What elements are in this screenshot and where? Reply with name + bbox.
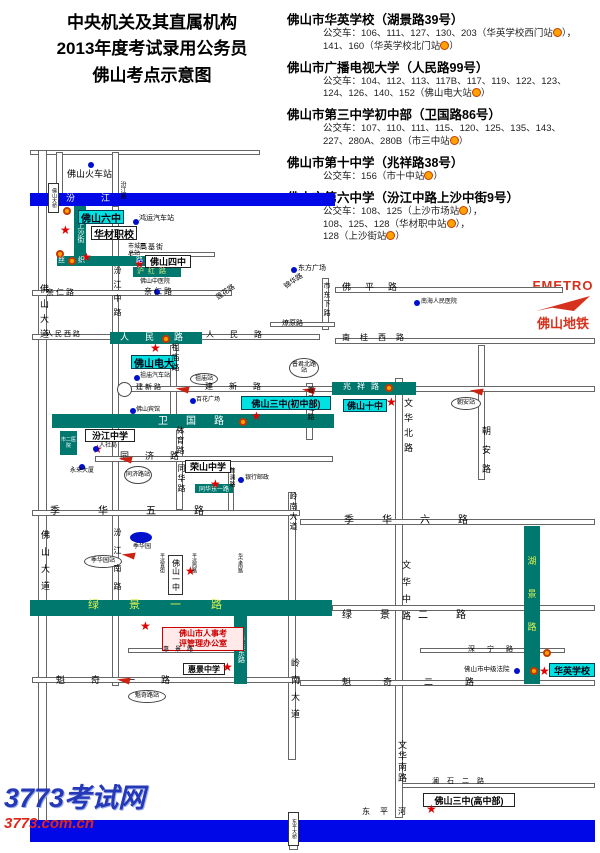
school-huaying: 华英学校 [549, 663, 595, 677]
wenhua-south-road-label: 文华南路 [397, 740, 406, 784]
roundabout [117, 382, 132, 397]
post-office-label: 银行邮政 [245, 475, 269, 482]
qinren-road-label-west: 亲仁路 [46, 289, 76, 298]
lingnan-avenue-label-bottom: 岭南大道 [290, 658, 299, 726]
huijing-road-label: 惠景路 [163, 647, 199, 654]
hujing-road-band: 湖景路 [524, 526, 540, 684]
star-foshan-dianda: ★ [150, 342, 161, 354]
gaoji-street-label: 高基街 [140, 244, 164, 252]
school-foshan-1: 佛山一中 [168, 555, 183, 595]
zhaoxiang-band-label: 兆祥路 [343, 383, 385, 392]
school-foshan-10: 佛山十中 [343, 399, 387, 412]
road-top-edge [30, 150, 260, 155]
shenning-road-label: 深宁路 [468, 646, 525, 654]
jihua-park-label: 季华园 [133, 544, 151, 551]
kuiqi-2-road-label: 魁奇二路 [342, 678, 506, 688]
nanhai-hospital-dot [414, 300, 420, 306]
zhongyi-hospital-label: 佛山中医院 [140, 279, 170, 286]
lanshi-2-road-label: 澜石二路 [432, 778, 492, 786]
jihua-5-road-label: 季华五路 [50, 506, 242, 517]
busstop-huaying [530, 667, 538, 675]
qinren-road-label-east: 亲仁路 [144, 288, 174, 297]
yonglai-tower-label: 永来大厦 [70, 468, 94, 475]
liaoyuan-road-label: 燎原路 [282, 320, 303, 328]
small-teal-block: 市二医院 [60, 431, 77, 455]
star-rongshan: ★ [210, 478, 221, 490]
railway-station-label: 佛山火车站 [67, 170, 112, 180]
busstop-zhaoxiang [385, 384, 393, 392]
pulan-road-label: 普澜路 [228, 467, 234, 488]
dongfang-plaza-label: 东方广场 [298, 265, 326, 273]
foping-road-label: 佛平路 [342, 283, 411, 293]
lanshi-2-road [402, 783, 595, 788]
watermark-main: 3773考试网 [4, 776, 219, 815]
metro-kuiqi-station: 魁奇路站 [128, 690, 166, 703]
dongping-bridge-label: 东平大桥 [288, 812, 299, 846]
map-layer: 同华东一路上沙街华远东路湖景路佛山大桥东平大桥汾江佛山火车站汾江路佛山六中★华材… [0, 0, 600, 853]
busstop-sizhi [68, 257, 76, 265]
zumiao-road-label: 祖庙路 [171, 343, 179, 373]
fenjiang-road-label: 汾江路 [119, 181, 125, 199]
dongping-river-label: 东平河 [362, 808, 416, 817]
jihua-park-shape [130, 532, 152, 543]
metro-chaoan-station: 朝安站 [451, 397, 481, 410]
school-foshan-3-senior: 佛山三中(高中部) [423, 793, 515, 807]
intermediate-court-dot [514, 668, 520, 674]
sizhi-char-3: 路 [136, 257, 143, 265]
lvjing-1-band-label: 绿景一路 [88, 599, 252, 611]
foshan-hotel-label: 佛山宾馆 [136, 407, 160, 414]
weiguo-band-label: 卫国路 [158, 416, 242, 427]
busstop-huacai [63, 207, 71, 215]
school-foshan-4: 佛山四中 [145, 255, 191, 268]
pingyuan-street-label: 平远直街 [159, 553, 164, 573]
jianxin-road-label-west: 建新路 [136, 384, 163, 392]
nanhai-hospital-label: 南海人民医院 [421, 299, 457, 306]
hongyun-station-label: 鸿运汽车站 [139, 215, 174, 223]
sizhi-char-1: 丝 [58, 257, 65, 265]
fenjiang-river-label: 汾江 [66, 194, 136, 204]
watermark-sub: 3773.com.cn [4, 815, 219, 832]
school-huacai: 华材职校 [91, 226, 137, 240]
shidongxia-road-label: 市东下路 [323, 282, 330, 318]
school-foshan-3-junior: 佛山三中(初中部) [241, 396, 331, 410]
star-foshan-10: ★ [386, 396, 397, 408]
busstop-hujing-shenning [543, 649, 551, 657]
star-personnel-office: ★ [140, 620, 151, 632]
lianhua-road-label: 莲花路 [214, 282, 237, 302]
nangui-west-road-label: 南桂西路 [342, 334, 414, 343]
huhong-road-label: 沪红路 [137, 268, 170, 276]
star-huijing: ★ [222, 661, 233, 673]
school-rongshan: 荣山中学 [185, 460, 231, 473]
fenjiang-south-road-label: 汾江南路 [113, 528, 121, 600]
chaoan-road-label: 朝安路 [481, 426, 490, 483]
school-huijing: 惠景中学 [183, 663, 225, 675]
fenjiang-mid-road-label: 汾江中路 [113, 266, 121, 322]
foshan-avenue-road [38, 150, 47, 830]
busstop-renmin [162, 335, 170, 343]
exam-site-map-page: 中央机关及其直属机构 2013年度考试录用公务员 佛山考点示意图 佛山市华英学校… [0, 0, 600, 853]
renmin-west-road-label: 人民西路 [46, 331, 82, 339]
foshan-avenue-label-bottom: 佛山大道 [40, 530, 49, 598]
jinhua-road-label: 锦华路 [282, 271, 305, 291]
renshe-bureau-label: 人社局 [99, 443, 117, 450]
star-foshan-3-junior: ★ [251, 410, 262, 422]
star-foshan-6: ★ [60, 224, 71, 236]
huabao-south-road-label: 华宝南路 [237, 553, 242, 573]
watermark: 3773考试网 3773.com.cn [4, 776, 219, 832]
lingnan-avenue-label-top: 岭南大道 [289, 492, 297, 532]
foshan-bridge-label: 佛山大桥 [48, 183, 59, 213]
busstop-weiguo [239, 418, 247, 426]
school-foshan-6: 佛山六中 [78, 210, 124, 224]
renmin-band-char-lu: 路 [174, 333, 183, 343]
school-fenjiang: 汾江中学 [85, 429, 135, 442]
metro-pujun-north-station: 普君北路站 [289, 358, 319, 378]
renmin-road-east-label: 人民路 [206, 331, 278, 340]
wenhua-north-road-label: 文华北路 [403, 398, 412, 458]
tonghua-road-label: 同华路 [177, 464, 185, 494]
jihua-6-road-label: 季华六路 [344, 515, 496, 526]
zhaoxiang-east-road [415, 386, 595, 392]
star-foshan-3-senior: ★ [426, 803, 437, 815]
metro-arrow-jihua-park [121, 550, 135, 560]
lvjing-2-road-label: 绿景二路 [342, 610, 494, 621]
metro-tongji-station: 同济路站 [124, 466, 152, 484]
zumiao-bus-station-label: 祖庙汽车站 [140, 373, 170, 380]
jianxin-road-label-east: 建新路 [205, 383, 277, 392]
intermediate-court-label: 佛山市中级法院 [464, 666, 510, 673]
post-office-dot [238, 477, 244, 483]
railway-station-dot [88, 162, 94, 168]
baihua-plaza-label: 百花广场 [196, 397, 220, 404]
pingyuan-west-road-label: 平远西路 [191, 553, 196, 573]
sizhi-char-2: 织 [78, 257, 85, 265]
road-station-east [112, 152, 119, 194]
